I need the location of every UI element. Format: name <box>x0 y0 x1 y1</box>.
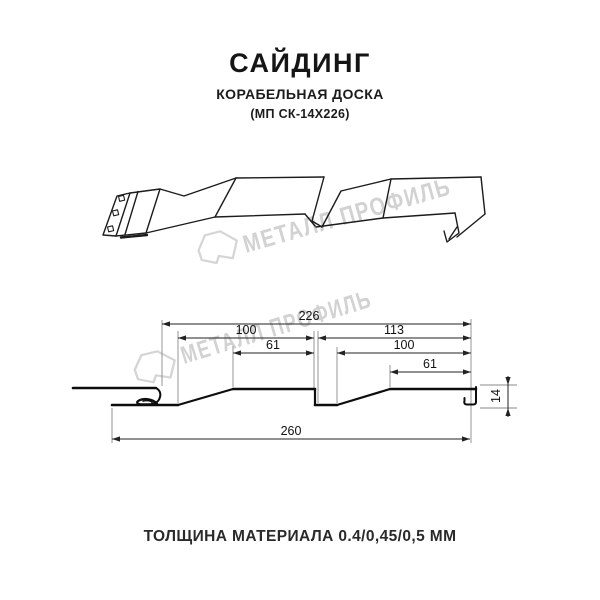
technical-drawing-canvas: МЕТАЛЛ ПРОФИЛЬ МЕТАЛЛ ПРОФИЛЬ <box>0 0 600 600</box>
dim-label-61-left: 61 <box>266 338 280 352</box>
page-root: { "header": { "title": "САЙДИНГ", "subti… <box>0 0 600 600</box>
watermark-logo-top <box>199 231 237 263</box>
dim-label-113: 113 <box>384 323 404 337</box>
watermark-logo-bottom <box>135 351 175 382</box>
dim-label-100-right: 100 <box>394 338 415 352</box>
dim-label-260: 260 <box>281 424 302 438</box>
dim-label-100-left: 100 <box>236 323 257 337</box>
dim-label-61-right: 61 <box>423 357 437 371</box>
footer-thickness-label: ТОЛЩИНА МАТЕРИАЛА 0.4/0,45/0,5 ММ <box>0 528 600 546</box>
dimension-arrowheads <box>112 321 511 441</box>
section-dimension-lines <box>112 324 508 439</box>
cross-section-profile <box>73 387 476 405</box>
dim-label-226: 226 <box>299 309 320 323</box>
watermark-text-bottom: МЕТАЛЛ ПРОФИЛЬ <box>178 285 376 370</box>
dim-label-14: 14 <box>489 389 503 403</box>
